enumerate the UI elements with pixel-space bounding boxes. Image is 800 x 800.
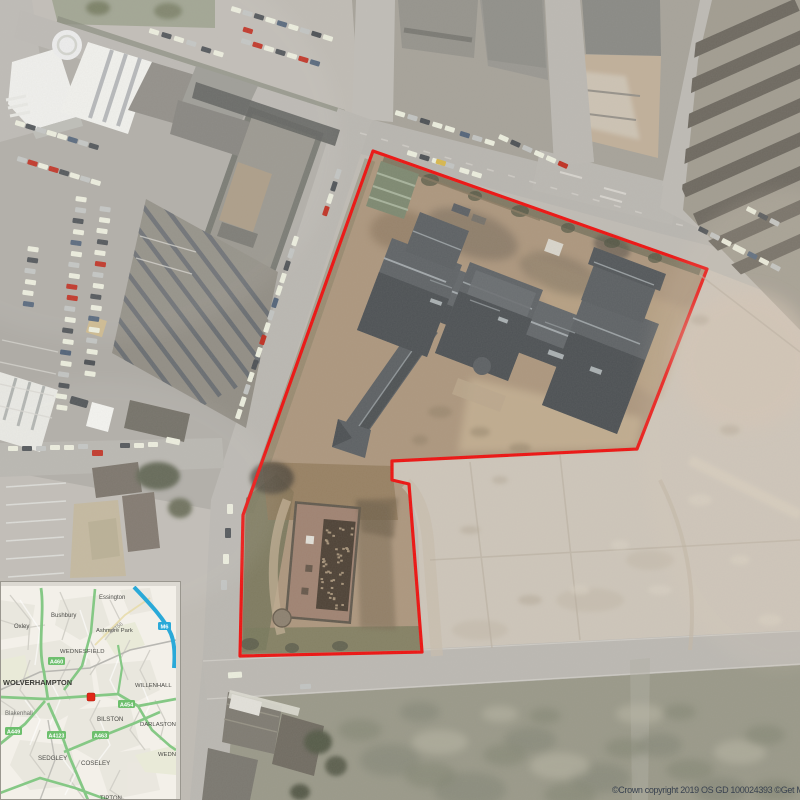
svg-text:Essington: Essington <box>99 595 125 601</box>
svg-text:WILLENHALL: WILLENHALL <box>135 683 172 689</box>
svg-text:A460: A460 <box>50 660 63 666</box>
svg-text:©Crown copyright 2019 OS GD 10: ©Crown copyright 2019 OS GD 100024393 ©G… <box>612 785 800 795</box>
svg-text:DARLASTON: DARLASTON <box>140 722 176 728</box>
svg-text:Oxley: Oxley <box>14 624 29 630</box>
svg-text:WOLVERHAMPTON: WOLVERHAMPTON <box>3 678 72 687</box>
svg-text:WEDNESFIELD: WEDNESFIELD <box>60 649 105 655</box>
svg-text:A449: A449 <box>7 730 20 736</box>
svg-text:SEDGLEY: SEDGLEY <box>38 755 67 762</box>
svg-text:A454: A454 <box>120 703 134 709</box>
svg-text:COSELEY: COSELEY <box>81 760 110 767</box>
svg-text:BILSTON: BILSTON <box>97 716 123 723</box>
svg-text:M6: M6 <box>160 625 169 631</box>
svg-text:Blakenhall: Blakenhall <box>5 711 33 717</box>
svg-text:A463: A463 <box>94 734 107 740</box>
svg-text:Bushbury: Bushbury <box>51 613 76 619</box>
svg-text:A4123: A4123 <box>49 734 65 740</box>
